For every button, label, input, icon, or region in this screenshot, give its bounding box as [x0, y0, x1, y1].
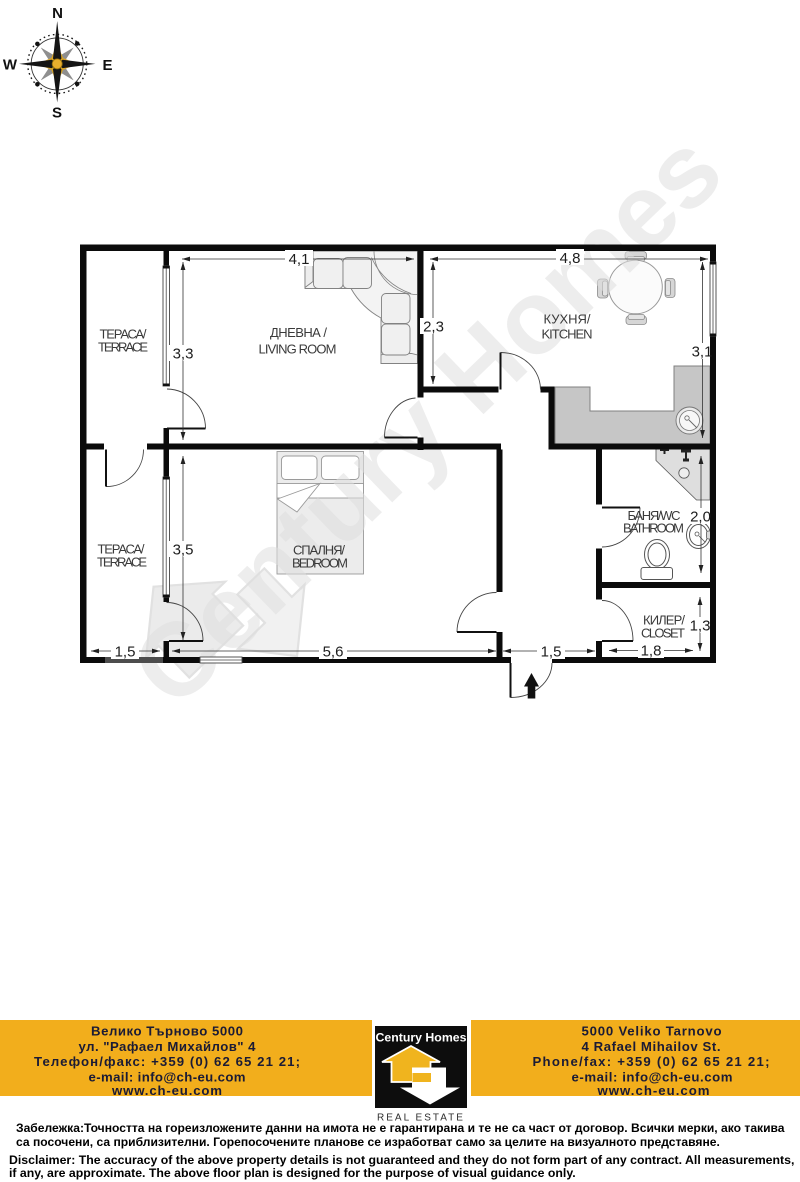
svg-text:LIVING ROOM: LIVING ROOM [259, 342, 337, 357]
svg-text:1,5: 1,5 [115, 644, 136, 661]
svg-text:ДНЕВНА /: ДНЕВНА / [270, 325, 327, 340]
svg-text:2,3: 2,3 [423, 319, 444, 336]
svg-text:Century Homes: Century Homes [376, 1031, 467, 1045]
svg-text:5,6: 5,6 [323, 644, 344, 661]
svg-text:TERRACE: TERRACE [98, 340, 148, 355]
svg-text:E: E [102, 57, 112, 74]
svg-text:Велико Търново 5000: Велико Търново 5000 [91, 1024, 243, 1039]
svg-text:CLOSET: CLOSET [641, 626, 685, 641]
svg-text:S: S [52, 105, 62, 122]
svg-text:Phone/fax: +359 (0) 62 65 21 2: Phone/fax: +359 (0) 62 65 21 21; [533, 1054, 770, 1069]
svg-text:BEDROOM: BEDROOM [292, 556, 348, 571]
svg-text:КУХНЯ/: КУХНЯ/ [544, 312, 591, 327]
svg-text:3,5: 3,5 [173, 542, 194, 559]
svg-text:KITCHEN: KITCHEN [542, 327, 593, 342]
svg-text:ул. "Рафаел Михайлов" 4: ул. "Рафаел Михайлов" 4 [79, 1039, 257, 1054]
svg-text:www.ch-eu.com: www.ch-eu.com [597, 1083, 710, 1098]
svg-text:3,1: 3,1 [692, 344, 713, 361]
svg-text:4,1: 4,1 [289, 251, 310, 268]
svg-text:Телефон/факс: +359 (0) 62 65 2: Телефон/факс: +359 (0) 62 65 21 21; [34, 1054, 300, 1069]
svg-text:3,3: 3,3 [173, 346, 194, 363]
svg-text:e-mail: info@ch-eu.com: e-mail: info@ch-eu.com [572, 1069, 733, 1084]
svg-text:2,0: 2,0 [690, 509, 711, 526]
svg-text:W: W [3, 57, 18, 74]
svg-text:BATHROOM: BATHROOM [623, 521, 684, 536]
svg-text:5000 Veliko Tarnovo: 5000 Veliko Tarnovo [582, 1024, 722, 1039]
svg-text:1,8: 1,8 [641, 643, 662, 660]
svg-text:TERRACE: TERRACE [97, 555, 147, 570]
svg-text:4 Rafael Mihailov St.: 4 Rafael Mihailov St. [582, 1039, 721, 1054]
svg-text:1,5: 1,5 [541, 644, 562, 661]
svg-text:N: N [52, 5, 63, 22]
svg-text:1,3: 1,3 [690, 618, 711, 635]
svg-text:4,8: 4,8 [560, 250, 581, 267]
svg-text:www.ch-eu.com: www.ch-eu.com [111, 1083, 222, 1098]
svg-text:e-mail: info@ch-eu.com: e-mail: info@ch-eu.com [89, 1069, 246, 1084]
